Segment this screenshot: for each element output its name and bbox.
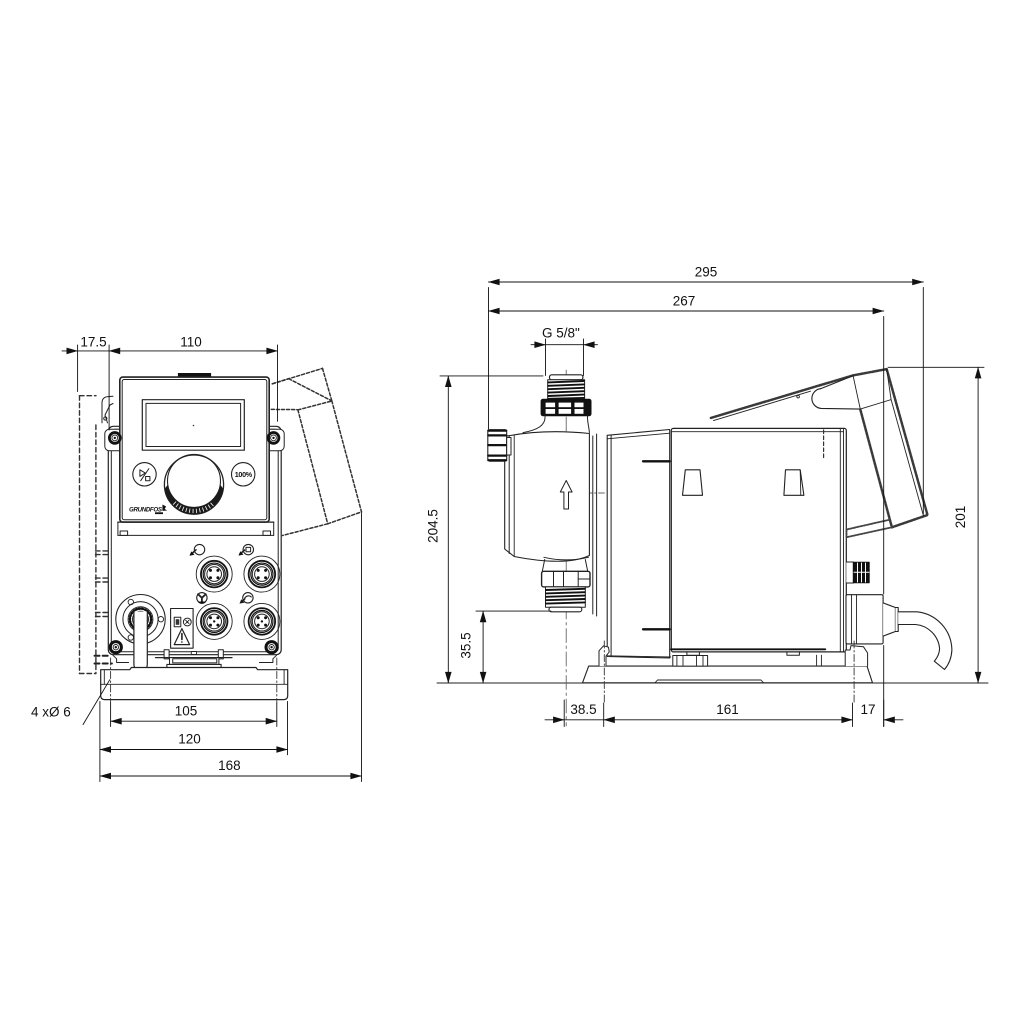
svg-text:38.5: 38.5 bbox=[570, 702, 596, 717]
svg-text:G 5/8": G 5/8" bbox=[542, 325, 580, 340]
svg-text:267: 267 bbox=[673, 294, 696, 309]
svg-text:204.5: 204.5 bbox=[426, 509, 441, 543]
svg-text:35.5: 35.5 bbox=[459, 632, 474, 658]
svg-text:110: 110 bbox=[180, 334, 202, 349]
svg-text:GRUNDFOS: GRUNDFOS bbox=[129, 506, 163, 513]
svg-text:120: 120 bbox=[178, 732, 201, 747]
svg-text:17: 17 bbox=[860, 702, 875, 717]
svg-text:161: 161 bbox=[716, 702, 739, 717]
svg-text:168: 168 bbox=[218, 758, 241, 773]
svg-text:295: 295 bbox=[695, 265, 718, 280]
svg-text:105: 105 bbox=[175, 703, 198, 718]
svg-text:100%: 100% bbox=[235, 470, 253, 479]
svg-text:17.5: 17.5 bbox=[80, 334, 106, 349]
svg-text:201: 201 bbox=[953, 506, 968, 529]
svg-text:4 xØ 6: 4 xØ 6 bbox=[31, 705, 71, 720]
